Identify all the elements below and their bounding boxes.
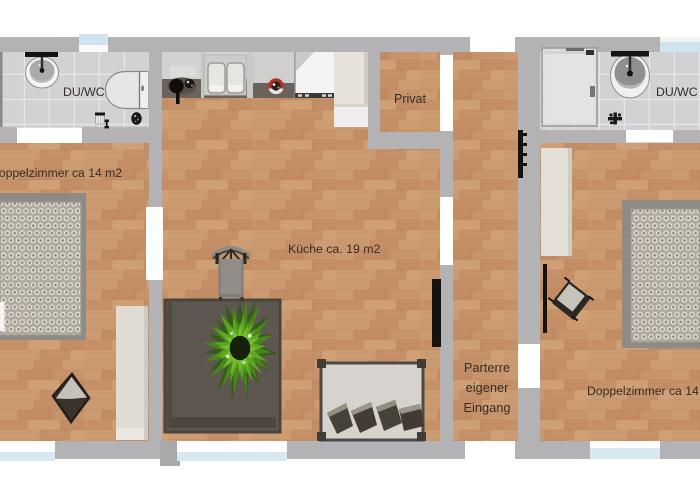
svg-text:Privat: Privat: [394, 92, 426, 106]
svg-text:eigener: eigener: [466, 380, 509, 395]
svg-text:Küche ca. 19 m2: Küche ca. 19 m2: [288, 242, 380, 256]
svg-text:DU/WC: DU/WC: [656, 85, 698, 99]
svg-text:Doppelzimmer ca 14 m2: Doppelzimmer ca 14 m2: [587, 384, 700, 398]
svg-text:Doppelzimmer ca 14 m2: Doppelzimmer ca 14 m2: [0, 166, 122, 180]
svg-text:DU/WC: DU/WC: [63, 85, 105, 99]
svg-text:Parterre: Parterre: [464, 360, 510, 375]
svg-text:Eingang: Eingang: [464, 400, 511, 415]
